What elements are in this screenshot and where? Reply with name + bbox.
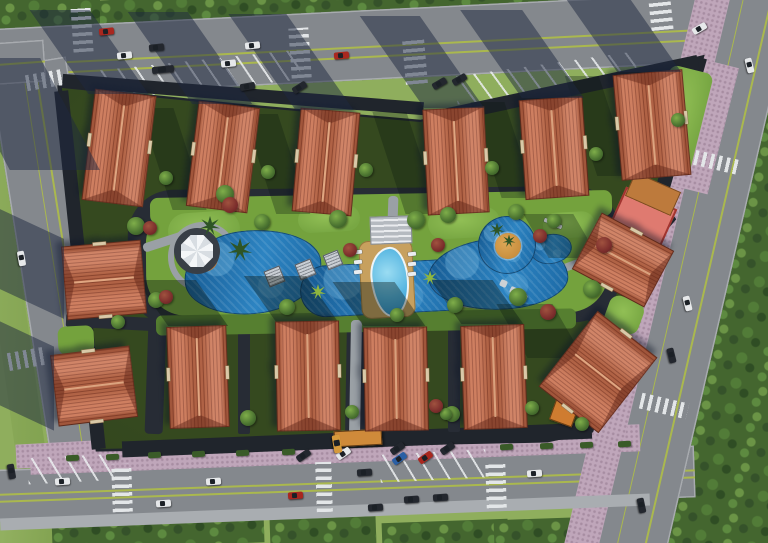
block-7-roof — [61, 240, 147, 321]
car-windows — [59, 479, 65, 484]
car — [433, 493, 448, 501]
red-bush — [596, 237, 612, 253]
island-terrace — [495, 233, 521, 259]
car-windows — [244, 84, 250, 90]
car-windows — [121, 53, 127, 59]
sun-lounger — [354, 270, 362, 275]
tree-belt — [382, 519, 509, 543]
roof-skylight — [423, 152, 427, 165]
car — [288, 491, 303, 499]
bush — [359, 163, 373, 177]
roof-detail — [196, 338, 201, 416]
sidewalk-hedge — [236, 450, 249, 457]
car-windows — [695, 25, 702, 32]
block-9-roof — [166, 325, 230, 429]
car-windows — [668, 351, 674, 357]
car — [527, 469, 542, 477]
roof-detail — [306, 334, 309, 418]
car — [404, 495, 419, 503]
block-4-roof — [422, 106, 489, 215]
roof-detail — [550, 110, 557, 186]
car-windows — [292, 493, 298, 498]
sidewalk-hedge — [580, 442, 593, 449]
roof-skylight — [520, 140, 524, 153]
roof-detail — [647, 85, 656, 165]
roof-skylight — [167, 368, 170, 381]
car-windows — [225, 61, 231, 67]
bush — [111, 315, 125, 329]
crosswalk — [485, 462, 507, 509]
tree-belt — [270, 516, 377, 543]
car-windows — [157, 67, 165, 73]
car-windows — [338, 53, 344, 58]
red-bush — [431, 238, 445, 252]
car — [368, 503, 383, 511]
block-10-roof — [275, 320, 341, 431]
car — [357, 468, 372, 476]
block-12-roof — [460, 324, 528, 430]
roof-skylight — [615, 117, 619, 130]
roof-detail — [74, 276, 135, 283]
bush — [345, 405, 359, 419]
bush — [583, 280, 601, 298]
walkway — [349, 320, 362, 438]
sidewalk-hedge — [540, 443, 553, 450]
crosswalk — [315, 462, 333, 513]
sun-lounger — [408, 262, 416, 267]
sidewalk-hedge — [282, 449, 295, 456]
aerial-site-plan-render — [0, 0, 768, 543]
bush — [407, 211, 425, 229]
sidewalk-hedge — [618, 441, 631, 448]
car-windows — [153, 45, 159, 51]
red-bush — [540, 304, 556, 320]
bush — [159, 171, 173, 185]
bush — [390, 308, 404, 322]
bush — [671, 113, 685, 127]
red-bush — [222, 197, 238, 213]
roof-skylight — [524, 365, 527, 378]
roof-skylight — [363, 369, 366, 382]
roof-skylight — [93, 242, 106, 246]
car-windows — [746, 61, 752, 67]
red-bush — [343, 243, 357, 257]
bush — [485, 161, 499, 175]
roof-detail — [64, 381, 125, 390]
car-windows — [372, 505, 378, 510]
red-bush — [159, 290, 173, 304]
block-11-roof — [363, 326, 429, 431]
block-3-roof — [292, 108, 361, 217]
car — [55, 477, 70, 485]
car-windows — [684, 299, 690, 305]
car-windows — [249, 43, 255, 49]
bush — [509, 288, 527, 306]
car-windows — [18, 255, 24, 261]
sun-lounger — [408, 252, 416, 257]
bush — [240, 410, 256, 426]
car-windows — [531, 471, 537, 476]
roof-skylight — [484, 149, 488, 162]
car-windows — [361, 470, 367, 475]
block-8-roof — [50, 345, 138, 426]
sidewalk-hedge — [192, 451, 205, 458]
car — [156, 499, 171, 507]
sidewalk-hedge — [500, 444, 513, 451]
car-windows — [8, 468, 14, 474]
roof-skylight — [426, 368, 429, 381]
sidewalk-hedge — [66, 455, 79, 462]
roof-skylight — [295, 149, 299, 162]
car-windows — [295, 84, 302, 91]
sidewalk-hedge — [148, 452, 161, 459]
bush — [261, 165, 275, 179]
car-windows — [210, 479, 216, 484]
bush — [254, 214, 270, 230]
crosswalk — [648, 0, 673, 31]
car — [334, 51, 350, 59]
red-bush — [429, 399, 443, 413]
car-windows — [437, 495, 443, 500]
bush — [279, 299, 295, 315]
sun-lounger — [354, 260, 362, 265]
roof-detail — [322, 123, 331, 202]
roof-detail — [492, 337, 497, 416]
roof-detail — [113, 106, 125, 191]
bush — [440, 207, 456, 223]
bush — [547, 214, 561, 228]
roof-skylight — [226, 366, 229, 379]
sun-lounger — [408, 272, 416, 277]
car — [206, 477, 221, 485]
roof-detail — [394, 339, 397, 418]
bush — [589, 147, 603, 161]
sidewalk-hedge — [106, 454, 119, 461]
roof-skylight — [338, 364, 341, 377]
car-windows — [333, 439, 340, 446]
roof-skylight — [275, 366, 278, 379]
car — [7, 464, 16, 480]
car-windows — [638, 501, 644, 507]
car-windows — [103, 29, 109, 35]
car-windows — [408, 497, 414, 502]
roof-skylight — [87, 133, 92, 146]
car-windows — [160, 501, 166, 506]
roof-skylight — [461, 368, 464, 381]
roof-skylight — [82, 349, 95, 354]
car-windows — [455, 76, 462, 83]
roof-detail — [575, 353, 622, 390]
crosswalk — [111, 464, 133, 513]
red-bush — [143, 221, 157, 235]
roof-detail — [453, 121, 459, 202]
bush — [525, 401, 539, 415]
car-windows — [435, 80, 442, 87]
bush — [575, 417, 589, 431]
roof-skylight — [191, 143, 196, 156]
red-bush — [533, 229, 547, 243]
bush — [508, 204, 524, 220]
bush — [329, 210, 347, 228]
block-5-roof — [519, 96, 590, 200]
bush — [447, 297, 463, 313]
